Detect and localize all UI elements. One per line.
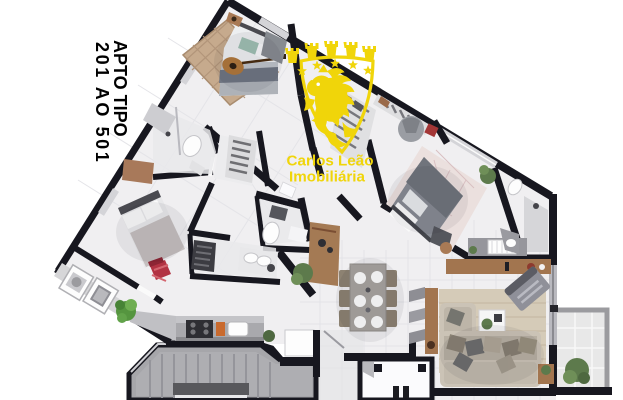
svg-text:Carlos Leão: Carlos Leão [287, 153, 374, 170]
svg-text:Imobiliária: Imobiliária [289, 169, 366, 186]
svg-text:APTO TIPO: APTO TIPO [110, 40, 130, 137]
svg-text:201 AO 501: 201 AO 501 [92, 42, 112, 164]
